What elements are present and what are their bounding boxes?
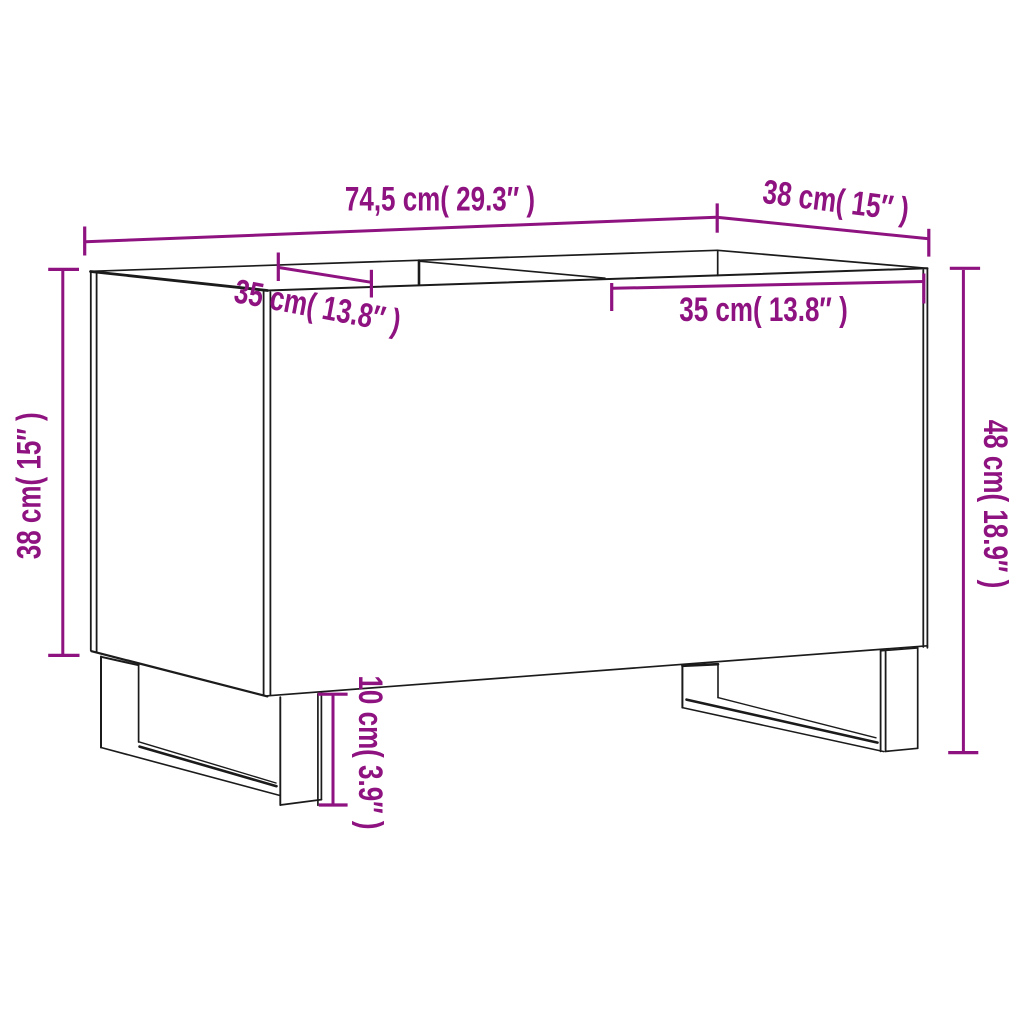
svg-text:74,5 cm( 29.3″ ): 74,5 cm( 29.3″ ): [345, 181, 535, 218]
svg-text:48 cm( 18.9″ ): 48 cm( 18.9″ ): [976, 420, 1013, 588]
svg-text:38 cm( 15″ ): 38 cm( 15″ ): [11, 412, 48, 559]
svg-text:35 cm( 13.8″ ): 35 cm( 13.8″ ): [679, 292, 847, 329]
svg-text:10 cm( 3.9″ ): 10 cm( 3.9″ ): [351, 675, 388, 829]
